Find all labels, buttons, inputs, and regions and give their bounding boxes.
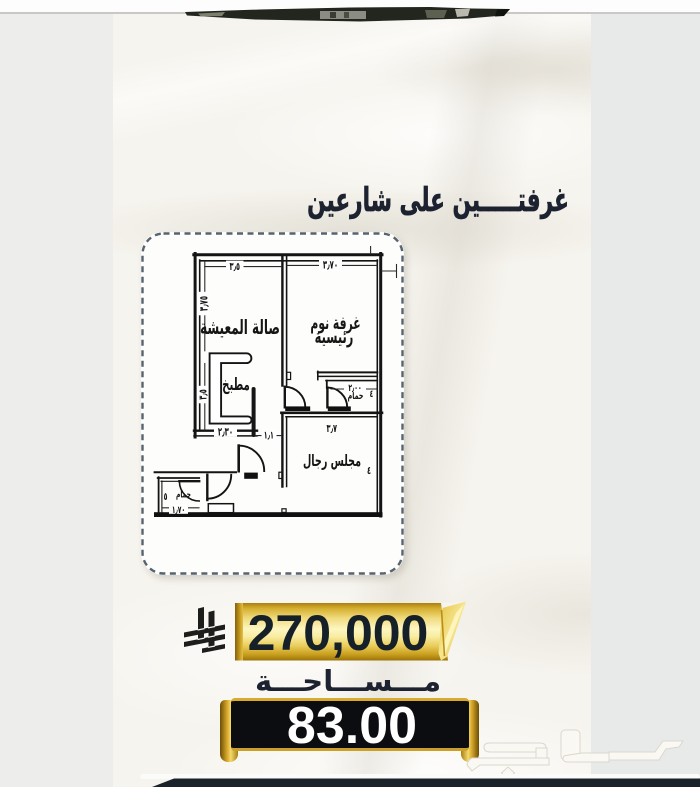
svg-text:مطبخ: مطبخ [222,375,250,394]
svg-text:٤: ٤ [370,387,374,399]
svg-text:٣٫٥: ٣٫٥ [230,261,241,273]
svg-text:رئيسية: رئيسية [315,325,354,348]
svg-text:٣٫٧٥: ٣٫٧٥ [198,296,211,311]
svg-text:٥: ٥ [164,492,168,504]
svg-text:صالة المعيشة: صالة المعيشة [200,316,280,339]
svg-text:٢٫٣٠: ٢٫٣٠ [218,426,233,439]
svg-text:مجلس رجال: مجلس رجال [303,453,361,471]
svg-text:٣٫٥: ٣٫٥ [198,389,210,400]
svg-text:١٫٧٠: ١٫٧٠ [172,503,185,515]
svg-text:٤: ٤ [367,466,371,478]
svg-text:١٫١: ١٫١ [264,430,274,442]
svg-text:حمام: حمام [176,488,191,501]
svg-text:٣٫٧٠: ٣٫٧٠ [323,259,338,272]
svg-text:٣٫٧: ٣٫٧ [327,423,338,435]
svg-text:٢٫٠٠: ٢٫٠٠ [348,381,361,393]
